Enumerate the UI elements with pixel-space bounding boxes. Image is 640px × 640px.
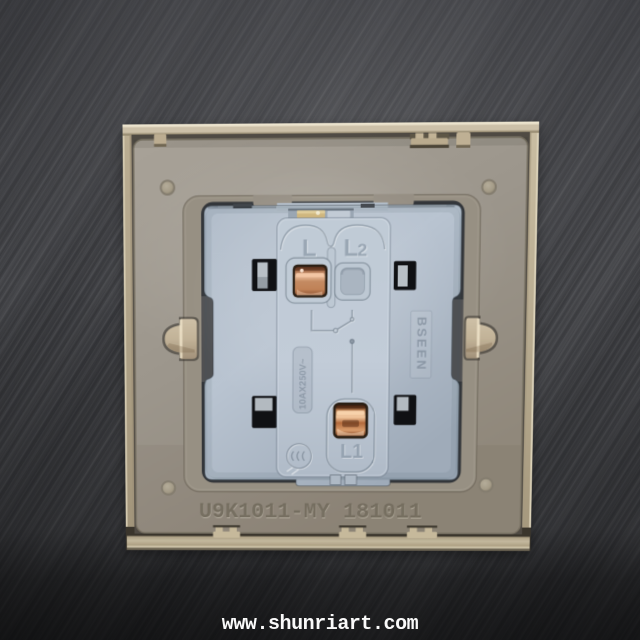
svg-text:L: L	[343, 235, 358, 262]
svg-text:L1: L1	[340, 441, 363, 462]
svg-text:U9K1011-MY 181011: U9K1011-MY 181011	[199, 499, 422, 524]
svg-text:BSEEN: BSEEN	[414, 317, 429, 372]
svg-text:2: 2	[357, 240, 367, 260]
svg-text:10AX250V~: 10AX250V~	[298, 358, 309, 409]
